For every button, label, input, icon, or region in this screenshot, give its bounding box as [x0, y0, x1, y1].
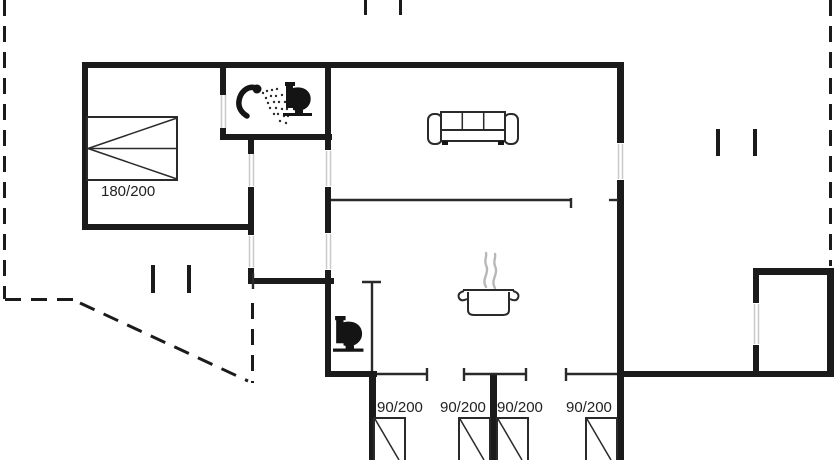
toilet-icon — [283, 82, 312, 116]
toilet-icon — [333, 316, 363, 352]
single-bed-label: 90/200 — [377, 399, 423, 416]
single-bed-label: 90/200 — [440, 399, 486, 416]
floor-plan: 180/200 90/200 90/200 90/200 90/200 — [0, 0, 834, 460]
double-bed-label: 180/200 — [101, 183, 155, 200]
hall-kitchen-door — [327, 234, 331, 269]
bedroom-hall-door — [250, 154, 254, 186]
steam-squiggle — [484, 253, 487, 287]
single-bed — [497, 418, 528, 460]
single-bed — [586, 418, 617, 460]
single-bed — [459, 418, 490, 460]
steam-squiggle — [493, 254, 496, 288]
bathroom-door — [222, 95, 226, 128]
single-bed — [374, 418, 405, 460]
shower-icon — [239, 85, 289, 125]
annex-door — [755, 304, 759, 344]
single-bed-label: 90/200 — [497, 399, 543, 416]
double-bed — [87, 117, 177, 180]
cooking-pot-icon — [459, 253, 519, 315]
single-bed-label: 90/200 — [566, 399, 612, 416]
living-room-window — [619, 144, 623, 179]
sofa-icon — [428, 112, 518, 145]
hall-living-door — [327, 151, 331, 186]
thin-partitions — [253, 198, 618, 381]
terrace-posts — [151, 129, 757, 293]
chimney-marks — [364, 0, 402, 15]
floor-plan-canvas: 180/200 90/200 90/200 90/200 90/200 — [0, 0, 834, 460]
entrance-door — [250, 236, 254, 267]
shower-spray-dots — [262, 88, 289, 124]
